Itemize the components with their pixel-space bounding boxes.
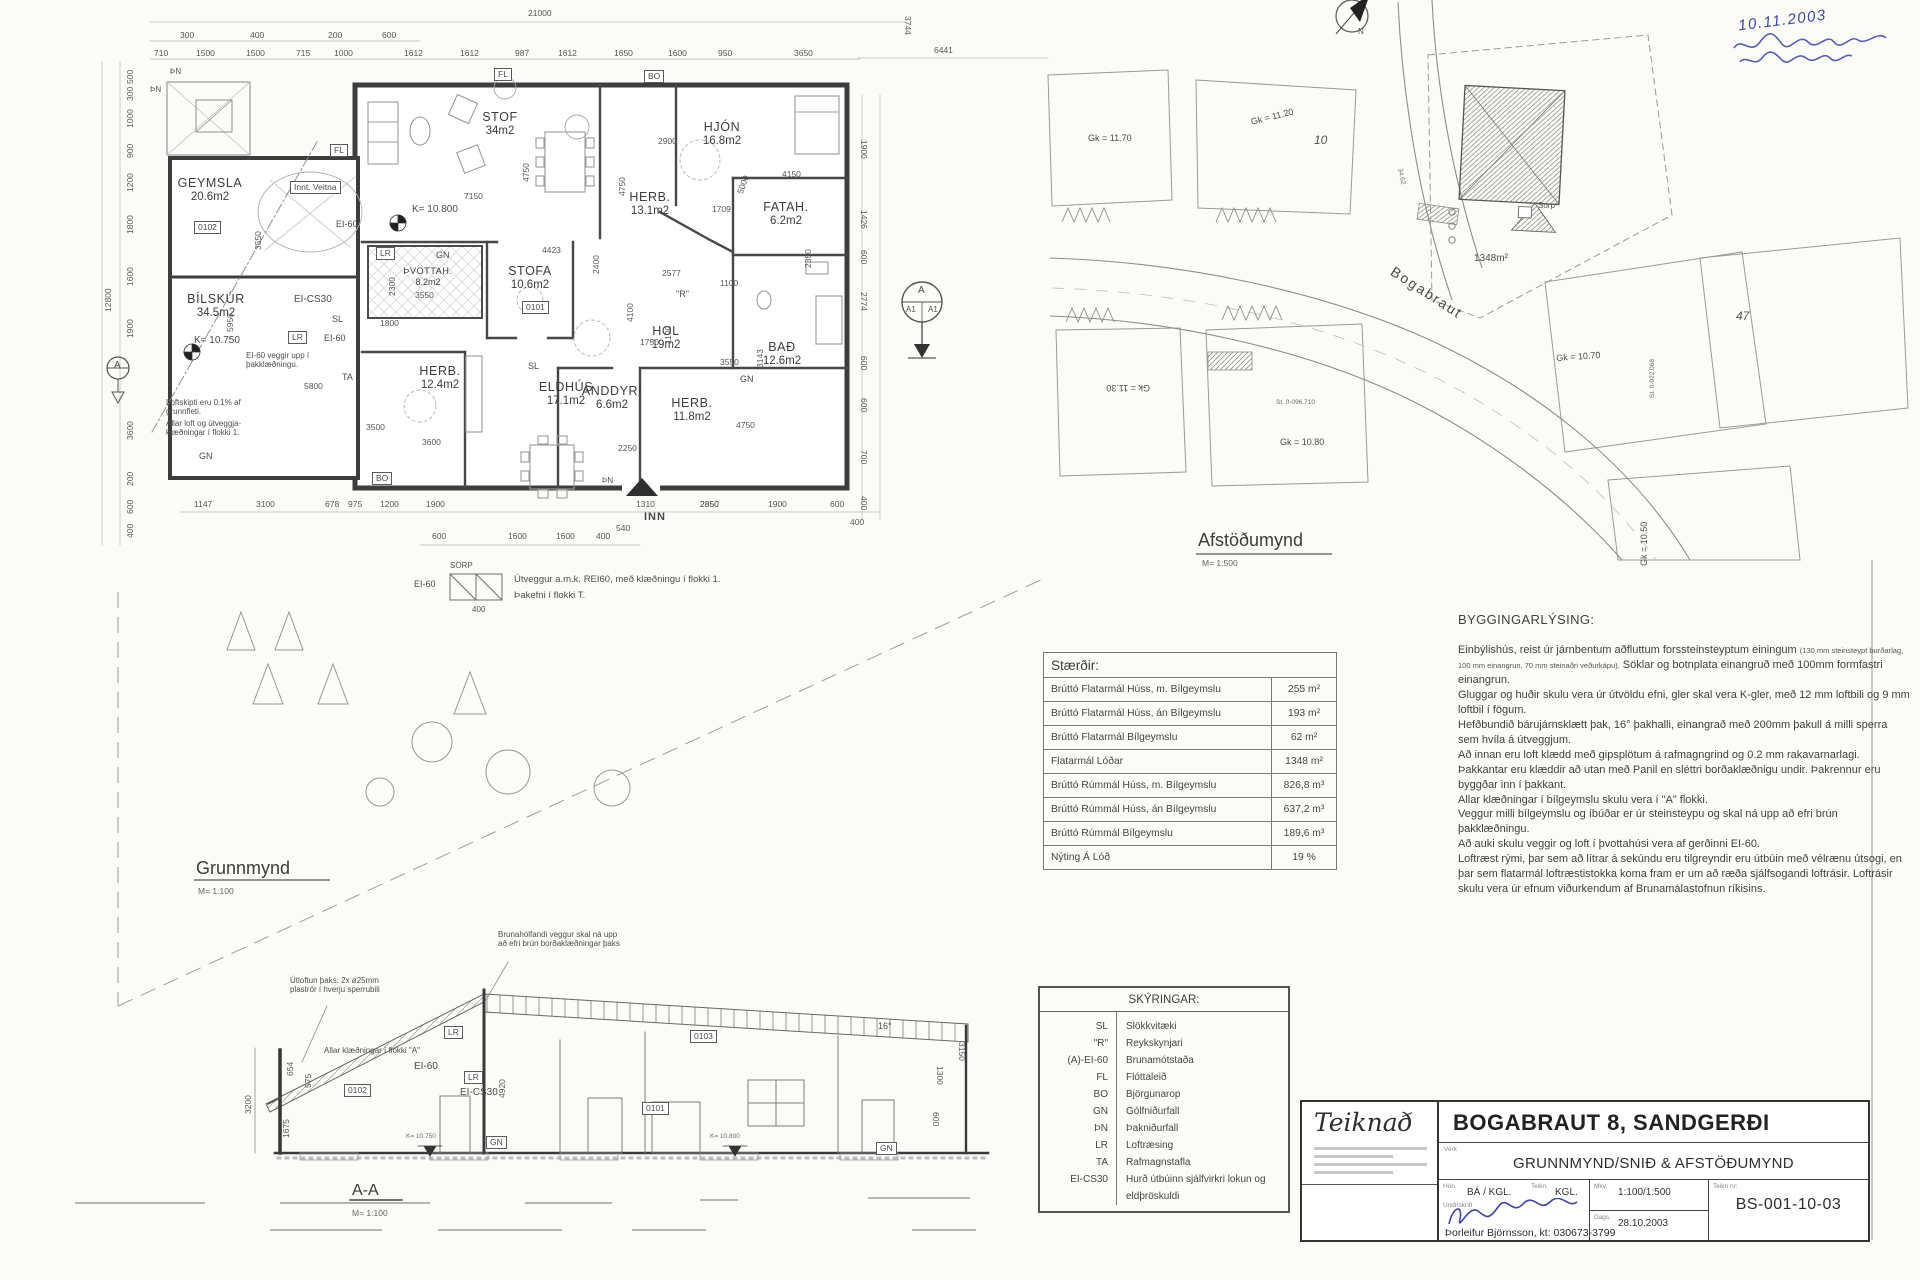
legend-code: GN — [1040, 1103, 1116, 1120]
company-name: Teiknað — [1302, 1102, 1437, 1139]
number-label: Teikn nr: — [1713, 1183, 1738, 1190]
floor-plan-title: Grunnmynd — [196, 858, 290, 879]
garden-trees — [227, 612, 630, 806]
legend-code: ÞN — [1040, 1120, 1116, 1137]
handwritten-signature-icon — [1734, 34, 1886, 62]
table-row: Brúttó Flatarmál Húss, án Bílgeymslu 193… — [1044, 701, 1336, 725]
legend-row: TA Rafmagnstafla — [1040, 1154, 1288, 1171]
size-row-value: 637,2 m³ — [1271, 798, 1336, 821]
legend-meaning: Björgunarop — [1116, 1086, 1288, 1103]
legend-code: (A)-EI-60 — [1040, 1052, 1116, 1069]
legend-meaning: Flóttaleið — [1116, 1069, 1288, 1086]
size-table-rows: Brúttó Flatarmál Húss, m. Bílgeymslu 255… — [1044, 677, 1336, 870]
signer-name: Þorleifur Björnsson, kt: 030673-3799 — [1445, 1227, 1615, 1239]
legend-row: FL Flóttaleið — [1040, 1069, 1288, 1086]
address-line — [1314, 1147, 1427, 1150]
company-cell-footer — [1302, 1184, 1437, 1240]
address-line — [1314, 1163, 1427, 1166]
drawing-title: GRUNNMYND/SNIÐ & AFSTÖÐUMYND — [1439, 1143, 1868, 1172]
site-plan-title: Afstöðumynd — [1198, 530, 1303, 551]
legend-code: EI-CS30 — [1040, 1171, 1116, 1205]
size-row-label: Brúttó Rúmmál Húss, án Bílgeymslu — [1044, 804, 1271, 815]
mkv-value: 1:100/1:500 — [1618, 1187, 1671, 1198]
table-row: Brúttó Rúmmál Húss, m. Bílgeymslu 826,8 … — [1044, 773, 1336, 797]
building-description: BYGGINGARLÝSING: Einbýlishús, reist úr j… — [1458, 612, 1910, 897]
building-description-paragraph: Að innan eru loft klædd með gipsplötum á… — [1458, 748, 1910, 763]
legend-code: BO — [1040, 1086, 1116, 1103]
size-row-label: Brúttó Rúmmál Bílgeymslu — [1044, 828, 1271, 839]
section-geometry — [255, 962, 988, 1200]
legend-row: BO Björgunarop — [1040, 1086, 1288, 1103]
floor-plan-scale: M= 1:100 — [198, 886, 234, 896]
teikn-label: Teikn. — [1531, 1183, 1548, 1190]
drawing-number: BS-001-10-03 — [1709, 1196, 1868, 1214]
size-row-label: Brúttó Flatarmál Húss, án Bílgeymslu — [1044, 708, 1271, 719]
legend-row: (A)-EI-60 Brunamótstaða — [1040, 1052, 1288, 1069]
company-address-lines — [1302, 1139, 1437, 1184]
table-row: Brúttó Rúmmál Bílgeymslu 189,6 m³ — [1044, 821, 1336, 845]
legend-code: FL — [1040, 1069, 1116, 1086]
site-plan-geometry — [1048, 0, 1908, 560]
size-row-label: Brúttó Flatarmál Húss, m. Bílgeymslu — [1044, 684, 1271, 695]
scale-row: Mkv. 1:100/1:500 — [1590, 1180, 1708, 1210]
legend-code: TA — [1040, 1154, 1116, 1171]
legend-row: "R" Reykskynjari — [1040, 1035, 1288, 1052]
legend-divider — [1116, 1012, 1117, 1205]
size-table: Stærðir: Brúttó Flatarmál Húss, m. Bílge… — [1043, 652, 1337, 870]
table-row: Nýting Á Lóð 19 % — [1044, 845, 1336, 870]
building-description-paragraph: Þakkantar eru klæddir að utan með Panil … — [1458, 763, 1910, 793]
size-row-value: 826,8 m³ — [1271, 774, 1336, 797]
legend-meaning: Loftræsing — [1116, 1137, 1288, 1154]
address-line — [1314, 1171, 1393, 1174]
building-description-paragraph: Hefðbundið bárujárnsklætt þak, 16° þakha… — [1458, 718, 1910, 748]
site-plan-scale: M= 1:500 — [1202, 558, 1238, 568]
building-description-paragraph: Veggur milli bílgeymslu og íbúðar er úr … — [1458, 807, 1910, 837]
legend-meaning: Þakniðurfall — [1116, 1120, 1288, 1137]
size-row-label: Flatarmál Lóðar — [1044, 756, 1271, 767]
building-description-intro: Einbýlishús, reist úr járnbentum aðflutt… — [1458, 643, 1910, 688]
legend-meaning: Rafmagnstafla — [1116, 1154, 1288, 1171]
legend-meaning: Reykskynjari — [1116, 1035, 1288, 1052]
dags-label: Dags. — [1594, 1214, 1611, 1221]
legend-row: LR Loftræsing — [1040, 1137, 1288, 1154]
project-title: BOGABRAUT 8, SANDGERÐI — [1439, 1102, 1868, 1143]
size-table-title: Stærðir: — [1044, 653, 1336, 677]
north-arrow-icon — [1336, 0, 1370, 34]
size-row-value: 255 m² — [1271, 678, 1336, 701]
legend-row: SL Slökkvitæki — [1040, 1018, 1288, 1035]
legend-meaning: Hurð útbúinn sjálfvirkri lokun og eldþrö… — [1116, 1171, 1288, 1205]
building-description-paragraph: Að auki skulu veggir og loft í þvottahús… — [1458, 837, 1910, 852]
legend-row: ÞN Þakniðurfall — [1040, 1120, 1288, 1137]
address-line — [1314, 1155, 1393, 1158]
teikn-value: KGL. — [1555, 1187, 1578, 1198]
hon-value: BÁ / KGL. — [1467, 1187, 1511, 1198]
table-row: Brúttó Flatarmál Bílgeymslu 62 m² — [1044, 725, 1336, 749]
size-row-value: 62 m² — [1271, 726, 1336, 749]
building-description-paragraph: Loftræst rými, þar sem að lítrar á sekún… — [1458, 852, 1910, 897]
table-row: Flatarmál Lóðar 1348 m² — [1044, 749, 1336, 773]
drawing-sheet: { "floor_plan": { "title": "Grunnmynd", … — [0, 0, 1920, 1280]
legend-table: SKÝRINGAR: SL Slökkvitæki "R" Reykskynja… — [1038, 986, 1290, 1213]
legend-meaning: Gólfniðurfall — [1116, 1103, 1288, 1120]
section-scale: M= 1:100 — [352, 1208, 388, 1218]
hon-label: Hön. — [1443, 1183, 1457, 1190]
size-row-label: Nýting Á Lóð — [1044, 852, 1271, 863]
legend-meaning: Slökkvitæki — [1116, 1018, 1288, 1035]
legend-code: "R" — [1040, 1035, 1116, 1052]
mkv-label: Mkv. — [1594, 1183, 1607, 1190]
table-row: Brúttó Rúmmál Húss, án Bílgeymslu 637,2 … — [1044, 797, 1336, 821]
legend-row: GN Gólfniðurfall — [1040, 1103, 1288, 1120]
verk-label: Verk — [1444, 1146, 1457, 1153]
drawing-title-row: Verk GRUNNMYND/SNIÐ & AFSTÖÐUMYND — [1439, 1143, 1868, 1180]
building-description-paragraph: Allar klæðningar í bílgeymslu skulu vera… — [1458, 793, 1910, 808]
legend-title: SKÝRINGAR: — [1040, 988, 1288, 1012]
size-row-value: 189,6 m³ — [1271, 822, 1336, 845]
floor-plan-geometry — [102, 22, 1048, 600]
title-block-company-cell: Teiknað — [1302, 1102, 1439, 1240]
size-row-value: 19 % — [1271, 846, 1336, 869]
size-row-value: 193 m² — [1271, 702, 1336, 725]
section-title: A-A — [352, 1182, 379, 1200]
building-description-paragraphs: Gluggar og huðir skulu vera úr útvöldu e… — [1458, 688, 1910, 897]
legend-meaning: Brunamótstaða — [1116, 1052, 1288, 1069]
drawing-number-cell: Teikn nr: BS-001-10-03 — [1709, 1180, 1868, 1240]
legend-rows: SL Slökkvitæki "R" Reykskynjari (A)-EI-6… — [1040, 1018, 1288, 1205]
building-description-paragraph: Gluggar og huðir skulu vera úr útvöldu e… — [1458, 688, 1910, 718]
size-row-label: Brúttó Rúmmál Húss, m. Bílgeymslu — [1044, 780, 1271, 791]
building-description-title: BYGGINGARLÝSING: — [1458, 612, 1910, 627]
legend-code: LR — [1040, 1137, 1116, 1154]
title-block: Teiknað BOGABRAUT 8, SANDGERÐI Verk GRUN… — [1300, 1100, 1870, 1242]
legend-code: SL — [1040, 1018, 1116, 1035]
dags-value: 28.10.2003 — [1618, 1218, 1668, 1229]
size-row-value: 1348 m² — [1271, 750, 1336, 773]
size-row-label: Brúttó Flatarmál Bílgeymslu — [1044, 732, 1271, 743]
legend-row: EI-CS30 Hurð útbúinn sjálfvirkri lokun o… — [1040, 1171, 1288, 1205]
table-row: Brúttó Flatarmál Húss, m. Bílgeymslu 255… — [1044, 677, 1336, 701]
